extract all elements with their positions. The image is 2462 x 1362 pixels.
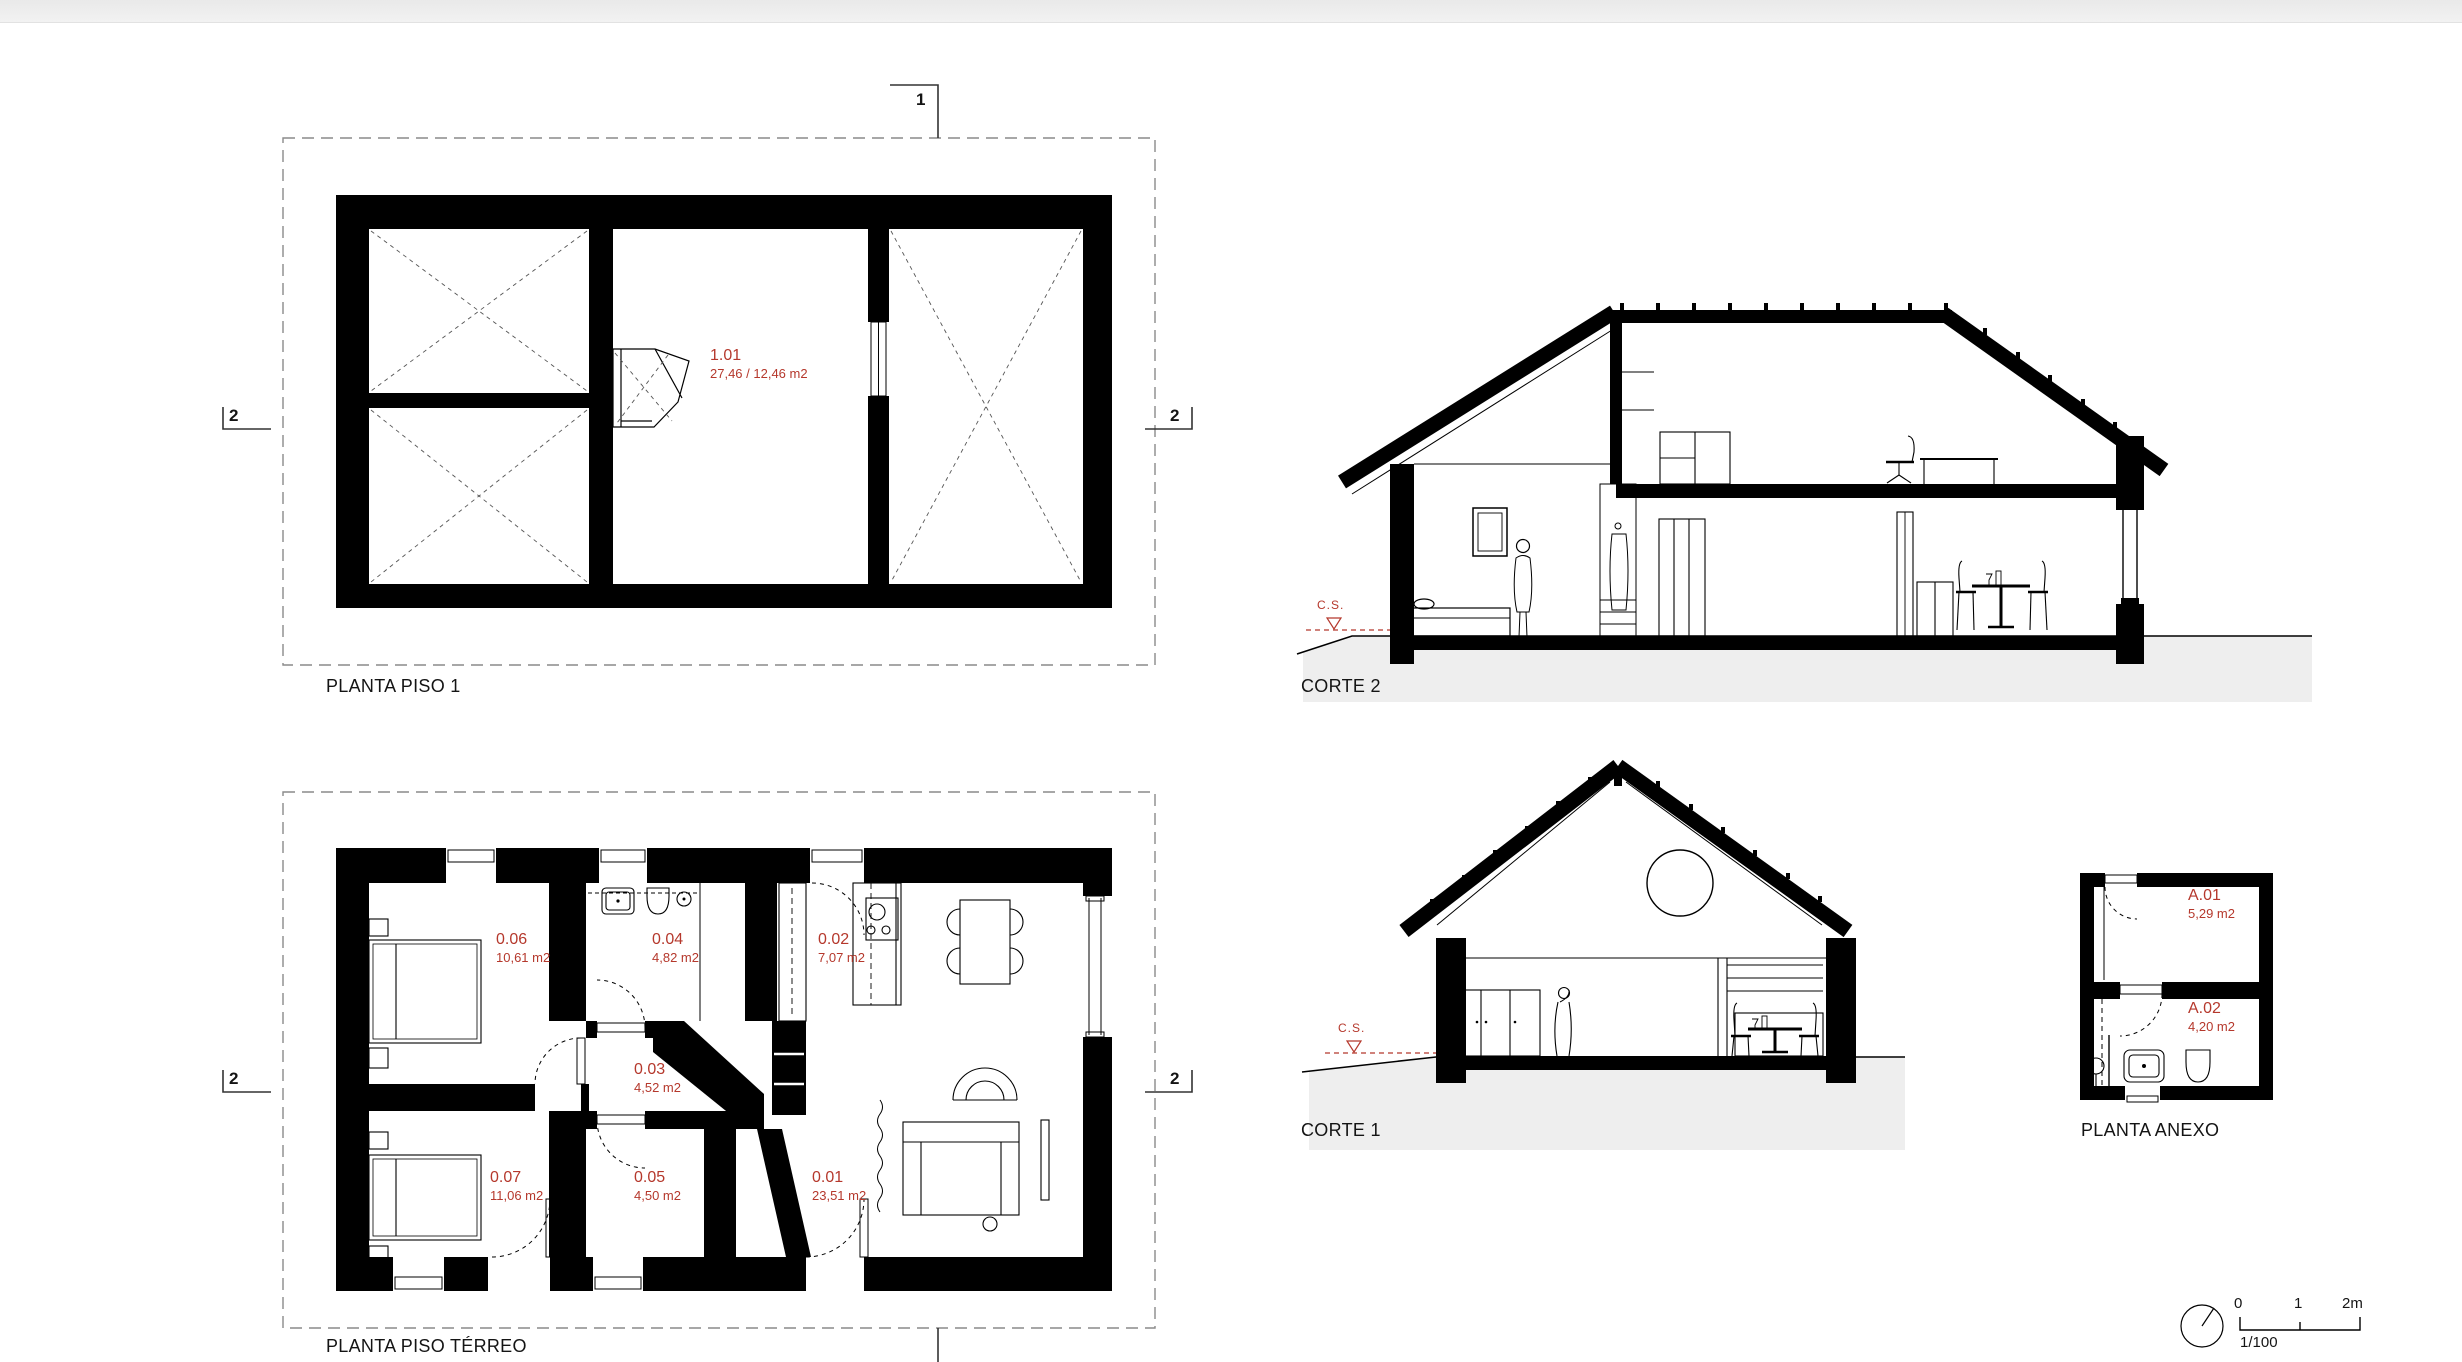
section-marker-2-right-terreo: 2: [1170, 1069, 1179, 1089]
architectural-sheet: PLANTA PISO 1 CORTE 2 PLANTA PISO TÉRREO…: [0, 0, 2462, 1362]
anexo-title: PLANTA ANEXO: [2081, 1120, 2219, 1141]
room-label-0-05: 0.05 4,50 m2: [634, 1168, 681, 1204]
room-label-0-03: 0.03 4,52 m2: [634, 1060, 681, 1096]
planta-terreo-drawing: [223, 792, 1192, 1362]
section-marker-1-top: 1: [916, 90, 925, 110]
cs-marker-corte1: C.S.: [1338, 1021, 1365, 1035]
scale-tick-1: 1: [2294, 1295, 2302, 1312]
planta-piso1-drawing: [223, 85, 1192, 665]
room-label-0-07: 0.07 11,06 m2: [490, 1168, 543, 1204]
scale-tick-2m: 2m: [2342, 1295, 2363, 1312]
room-label-0-02: 0.02 7,07 m2: [818, 930, 865, 966]
room-label-a-02: A.02 4,20 m2: [2188, 999, 2235, 1035]
room-label-1-01: 1.01 27,46 / 12,46 m2: [710, 346, 808, 382]
corte2-drawing: [1297, 303, 2312, 702]
piso1-title: PLANTA PISO 1: [326, 676, 461, 697]
corte1-title: CORTE 1: [1301, 1120, 1381, 1141]
section-marker-2-left-piso1: 2: [229, 406, 238, 426]
section-marker-2-left-terreo: 2: [229, 1069, 238, 1089]
terreo-title: PLANTA PISO TÉRREO: [326, 1336, 527, 1357]
planta-anexo-drawing: [2080, 873, 2273, 1102]
corte1-drawing: [1302, 766, 1905, 1150]
room-label-0-06: 0.06 10,61 m2: [496, 930, 550, 966]
room-label-0-01: 0.01 23,51 m2: [812, 1168, 866, 1204]
room-label-a-01: A.01 5,29 m2: [2188, 886, 2235, 922]
scale-ratio: 1/100: [2240, 1334, 2278, 1351]
corte2-title: CORTE 2: [1301, 676, 1381, 697]
room-label-0-04: 0.04 4,82 m2: [652, 930, 699, 966]
cs-marker-corte2: C.S.: [1317, 598, 1344, 612]
scale-tick-0: 0: [2234, 1295, 2242, 1312]
section-marker-2-right-piso1: 2: [1170, 406, 1179, 426]
